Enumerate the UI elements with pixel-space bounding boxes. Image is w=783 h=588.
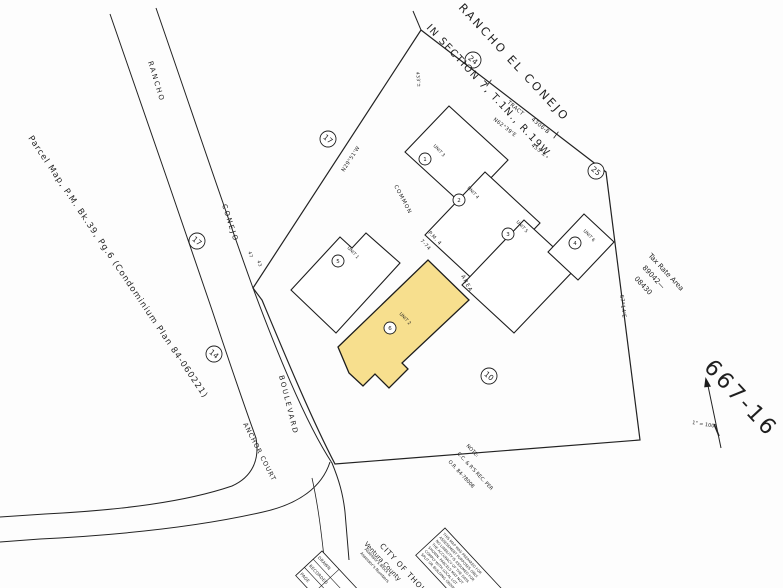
street-labels: RANCHO CONEJO BOULEVARD ANCHOR COURT <box>146 60 299 482</box>
street-label-rancho: RANCHO <box>146 60 166 103</box>
road-dim-2: 43 <box>255 260 263 268</box>
street-label-anchor-court: ANCHOR COURT <box>241 421 278 482</box>
ccr-note: NOTE: C.C. & R'S REC. PER O.R. 84-78008 <box>447 443 495 492</box>
revision-table: DRAWN RECORDED PAGE <box>296 551 370 588</box>
dim-top-corner: 433'± <box>414 72 422 88</box>
boundary-extension <box>413 11 421 30</box>
reference-note: Parcel Map, P.M. Bk.39, Pg.6 (Condominiu… <box>26 134 210 400</box>
street-label-conejo: CONEJO <box>220 203 240 243</box>
road-inner-line <box>312 478 324 557</box>
common-area-label-1: COMMON <box>392 184 412 215</box>
unit-number: 1 <box>423 157 427 163</box>
road-dim-1: 47 <box>246 251 254 259</box>
pm-ref-line2: 7-74 <box>419 238 432 252</box>
bearing-right: S7°14'E <box>618 295 627 319</box>
unit-number: 3 <box>506 232 510 238</box>
unit-number: 5 <box>336 259 340 265</box>
disclaimer-box: THIS MAP WAS PREPARED FOR ASSESSMENT PUR… <box>416 528 510 588</box>
map-canvas: UNIT 3 1 UNIT 4 2 UNIT 5 3 UNIT 6 4 UNIT… <box>0 0 783 588</box>
unit-number: 4 <box>573 241 577 247</box>
scale-label: 1" = 100' <box>692 420 716 430</box>
unit-number: 2 <box>457 198 461 204</box>
road-left-edge <box>0 14 257 517</box>
note-line1: NOTE: <box>465 443 480 459</box>
street-label-boulevard: BOULEVARD <box>277 375 300 436</box>
tax-rate-area: Tax Rate Area 89042— 08430 <box>633 251 686 296</box>
assessor-parcel-map: UNIT 3 1 UNIT 4 2 UNIT 5 3 UNIT 6 4 UNIT… <box>0 0 783 588</box>
unit-number: 6 <box>388 326 392 332</box>
